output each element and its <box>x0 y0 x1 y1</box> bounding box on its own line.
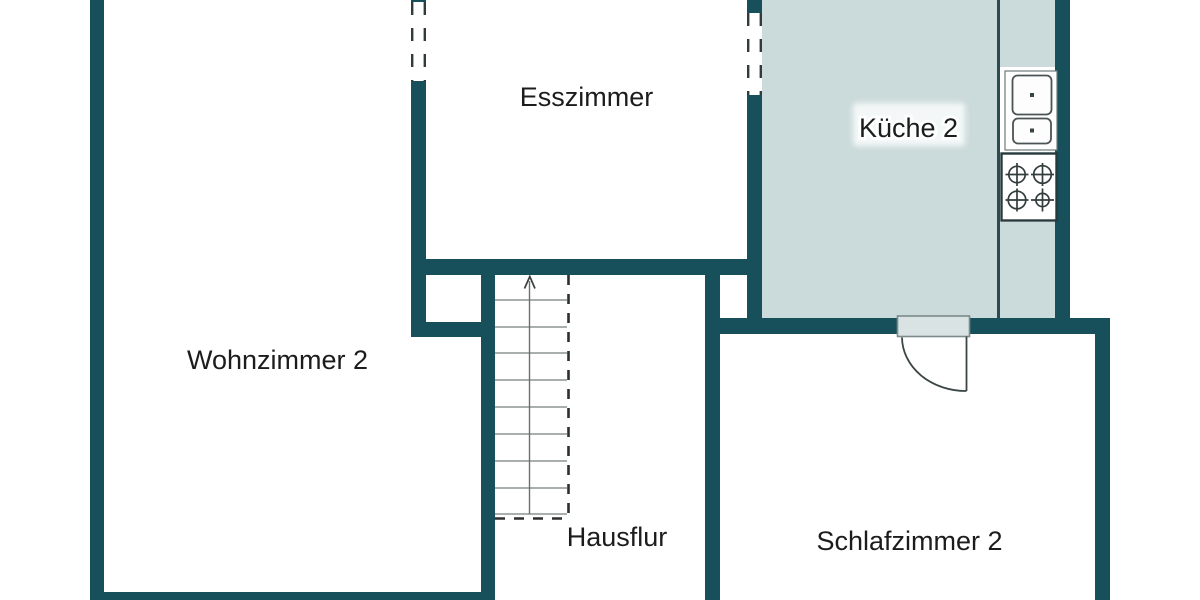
svg-text:Hausflur: Hausflur <box>567 522 668 552</box>
svg-text:Wohnzimmer 2: Wohnzimmer 2 <box>187 345 368 375</box>
svg-text:Schlafzimmer 2: Schlafzimmer 2 <box>816 526 1002 556</box>
svg-text:Esszimmer: Esszimmer <box>520 82 654 112</box>
svg-text:Küche 2: Küche 2 <box>859 113 958 143</box>
